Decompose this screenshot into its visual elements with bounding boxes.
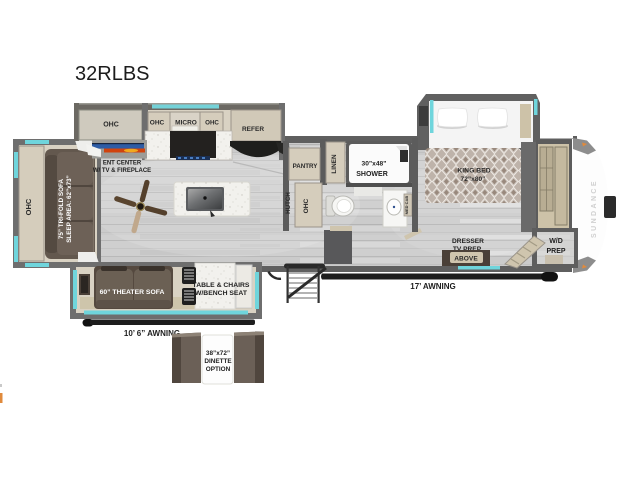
svg-text:W/ TV & FIREPLACE: W/ TV & FIREPLACE <box>93 168 151 174</box>
svg-text:75” TRI-FOLD SOFA: 75” TRI-FOLD SOFA <box>58 178 65 239</box>
svg-text:30”x48”: 30”x48” <box>362 161 387 168</box>
svg-text:OHC: OHC <box>205 120 219 127</box>
svg-text:72”x80”: 72”x80” <box>461 176 486 183</box>
svg-text:OHC: OHC <box>303 198 310 213</box>
svg-text:ENT CENTER: ENT CENTER <box>103 161 142 167</box>
svg-text:SLEEP AREA: 62”x73”: SLEEP AREA: 62”x73” <box>66 175 73 243</box>
svg-text:DINETTE: DINETTE <box>204 358 232 365</box>
svg-text:KING BED: KING BED <box>457 168 490 175</box>
svg-text:10’ 6” AWNING: 10’ 6” AWNING <box>124 329 180 338</box>
svg-text:32RLBS: 32RLBS <box>75 63 150 85</box>
svg-text:DRESSER: DRESSER <box>452 238 484 245</box>
svg-text:MED CAB: MED CAB <box>404 196 409 215</box>
svg-text:ABOVE: ABOVE <box>454 256 478 263</box>
svg-text:W/D: W/D <box>549 238 563 245</box>
svg-text:OHC: OHC <box>150 120 165 127</box>
svg-text:OHC: OHC <box>103 122 119 129</box>
svg-text:OHC: OHC <box>24 198 33 215</box>
svg-text:SUNDANCE: SUNDANCE <box>591 179 598 238</box>
svg-text:HUTCH: HUTCH <box>285 192 292 214</box>
svg-text:PREP: PREP <box>546 248 565 255</box>
svg-text:TABLE & CHAIRS: TABLE & CHAIRS <box>193 282 250 289</box>
svg-text:PANTRY: PANTRY <box>293 163 319 170</box>
svg-text:60” THEATER SOFA: 60” THEATER SOFA <box>100 289 165 296</box>
svg-text:17’ AWNING: 17’ AWNING <box>410 282 456 291</box>
svg-text:LINEN: LINEN <box>331 154 338 174</box>
svg-text:REFER: REFER <box>242 126 264 133</box>
svg-text:SHOWER: SHOWER <box>356 171 388 178</box>
svg-text:W/BENCH SEAT: W/BENCH SEAT <box>195 290 248 297</box>
svg-text:38”x72”: 38”x72” <box>206 350 230 357</box>
svg-text:MICRO: MICRO <box>175 120 197 127</box>
svg-text:OPTION: OPTION <box>206 366 231 373</box>
